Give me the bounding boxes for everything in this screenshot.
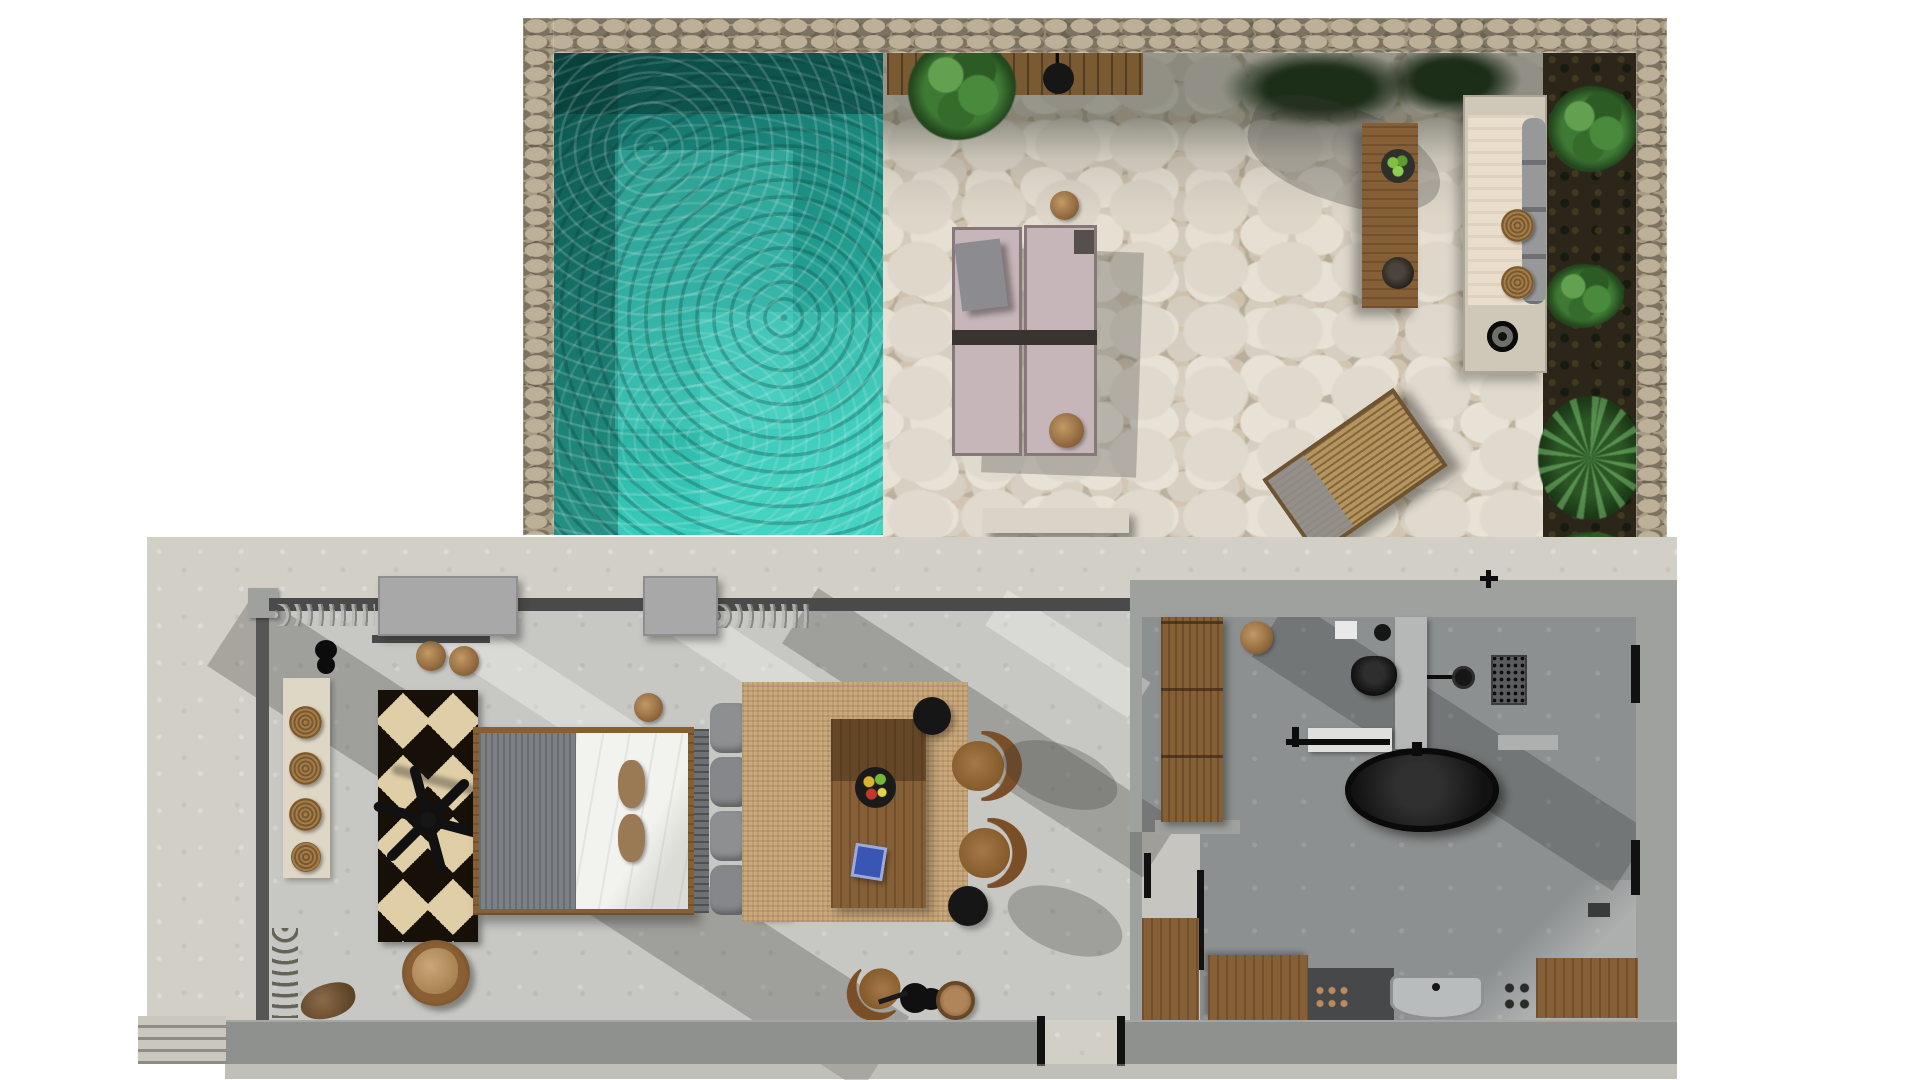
floor-mat [1588,903,1610,917]
woven-platter [1501,209,1534,242]
vanity-faucet [1292,727,1299,747]
daybed-tray [952,330,1097,345]
terrace-wall-west [523,18,554,535]
door-jamb [1144,853,1151,898]
pool [552,52,883,535]
towel-bar [1286,739,1390,745]
vessel [1374,624,1391,641]
vine-stem [272,928,298,1018]
curtain [716,604,810,628]
terrace-wall-east [1636,18,1667,583]
shower-head [1452,666,1475,689]
east-wall [1636,580,1677,1020]
shower-partition [1395,617,1427,749]
south-wall [225,1020,1677,1064]
bathroom-west-wall [1130,617,1142,832]
west-wall [256,593,269,1020]
pillow [618,760,645,808]
door-jamb [1037,1016,1045,1066]
fire-bowl [1487,321,1518,352]
woven-platter [291,842,321,872]
exterior-steps [138,1016,226,1064]
book [851,843,888,882]
wall-drop-shadow [225,1064,1677,1079]
black-ornament [317,656,335,674]
bathtub [1345,748,1499,832]
shower-mixer [1486,570,1491,588]
roof-overhang [643,576,718,636]
toilet [1351,656,1397,696]
tub-faucet [1412,742,1422,756]
bath-shelf [1498,735,1558,750]
terrace-wall-north [523,18,1667,53]
headboard-bench [694,729,709,913]
basket [936,981,975,1020]
wardrobe [1161,617,1223,822]
kitchen-sink [1390,975,1484,1020]
entry-door-opening [1045,1020,1119,1064]
chair-seat [959,828,1009,878]
bed [473,727,694,915]
kitchen-cabinet [1142,918,1199,1020]
hob-knobs [1314,984,1350,1010]
daybed-backrest [954,238,1008,311]
floorplan-stage [0,0,1920,1080]
roof-overhang [378,576,518,636]
niche [1335,621,1357,639]
fan-hub [420,812,436,828]
woven-platter [1501,266,1534,299]
terrace-step-slab [983,508,1129,533]
nook-wall [1155,820,1240,834]
side-stool [1050,191,1079,220]
fur-chair [402,940,470,1006]
pool-ripples [552,52,883,535]
palm-icon [1538,396,1642,520]
curtain [275,604,375,626]
black-stool [913,697,951,735]
wood-bowl [449,646,479,676]
bed-throw [479,733,576,909]
daybed-towel [1074,230,1094,254]
door-jamb [1631,840,1640,895]
side-stool [1049,413,1084,448]
woven-platter [289,706,322,739]
door-jamb [1631,645,1640,703]
pillow [618,814,645,862]
dark-bowl [1382,257,1414,289]
bathroom-north-wall [1130,580,1677,617]
kitchen-counter [1536,958,1638,1018]
woven-platter [289,798,322,831]
fruit-bowl [855,767,896,808]
ceiling-fan [368,760,488,880]
kitchen-counter [1208,955,1308,1020]
coffee-set [1502,980,1532,1012]
wood-bowl [416,641,446,671]
fire-pendant [1043,63,1074,94]
black-stool [948,886,988,926]
chair-seat [952,741,1004,791]
bath-stool [1240,621,1273,654]
bedside-stool [634,693,663,722]
door-jamb [1117,1016,1125,1066]
shower-drain [1491,655,1527,705]
sink-faucet [1432,983,1440,991]
woven-platter [289,752,322,785]
dining-chair [955,818,1027,888]
sheepskin [412,948,458,994]
lime-bowl [1381,149,1415,183]
